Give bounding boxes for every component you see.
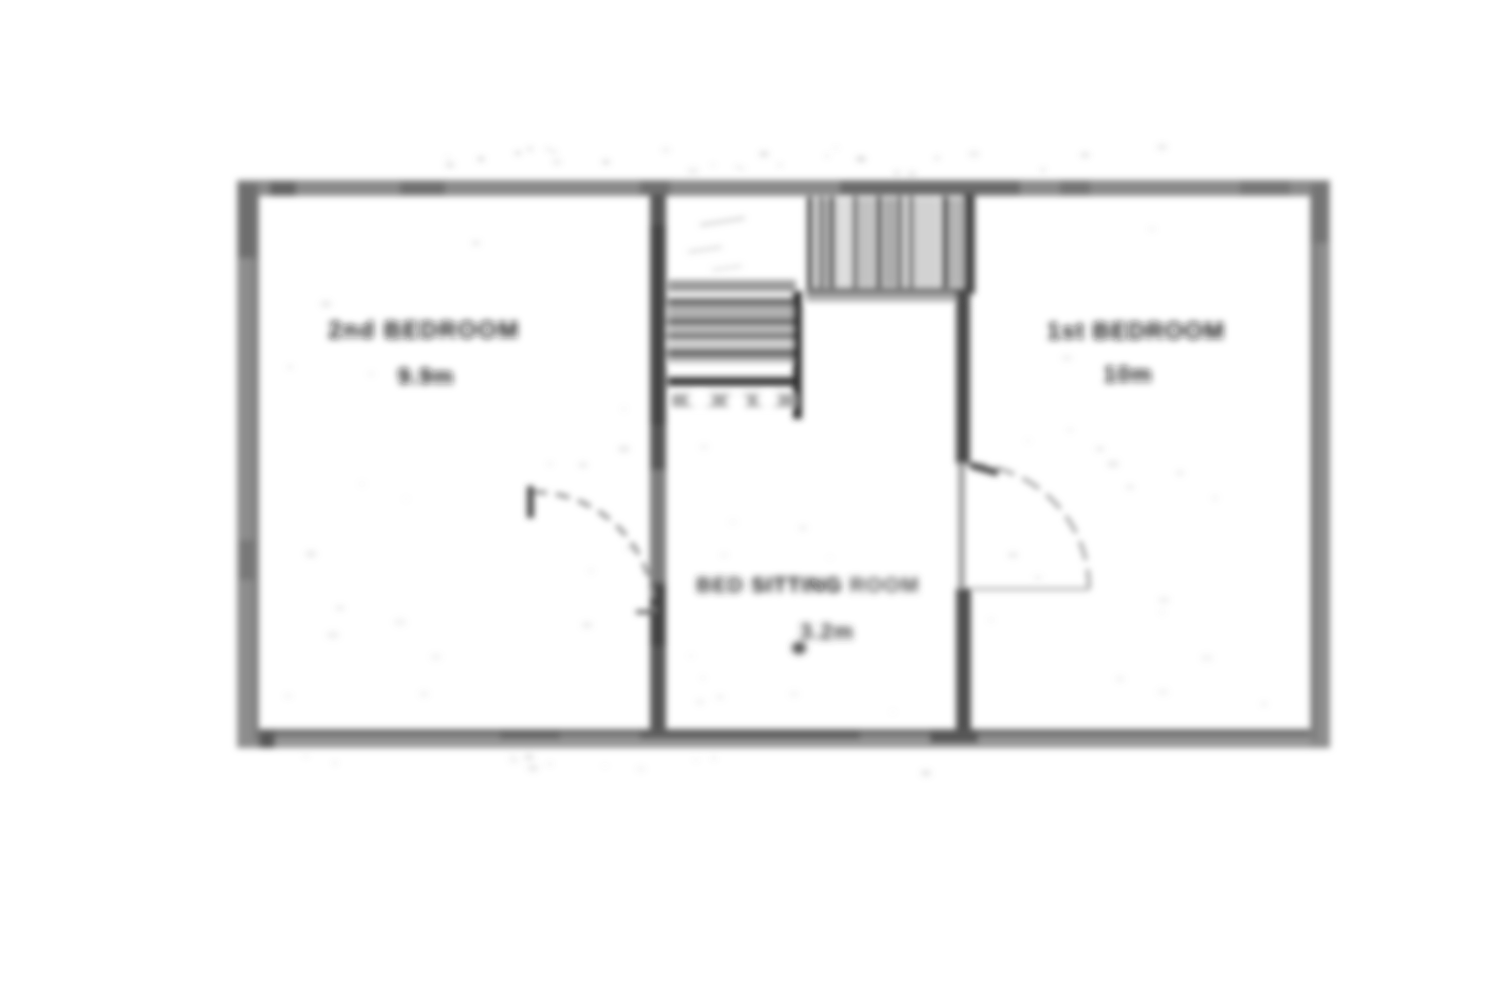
svg-text:3.2m: 3.2m	[800, 619, 854, 644]
svg-text:9.9m: 9.9m	[398, 363, 454, 389]
svg-text:2nd BEDROOM: 2nd BEDROOM	[328, 317, 519, 344]
svg-text:10m: 10m	[1103, 361, 1152, 387]
svg-text:1st BEDROOM: 1st BEDROOM	[1047, 318, 1225, 345]
svg-text:BED SITTING ROOM: BED SITTING ROOM	[696, 574, 919, 597]
